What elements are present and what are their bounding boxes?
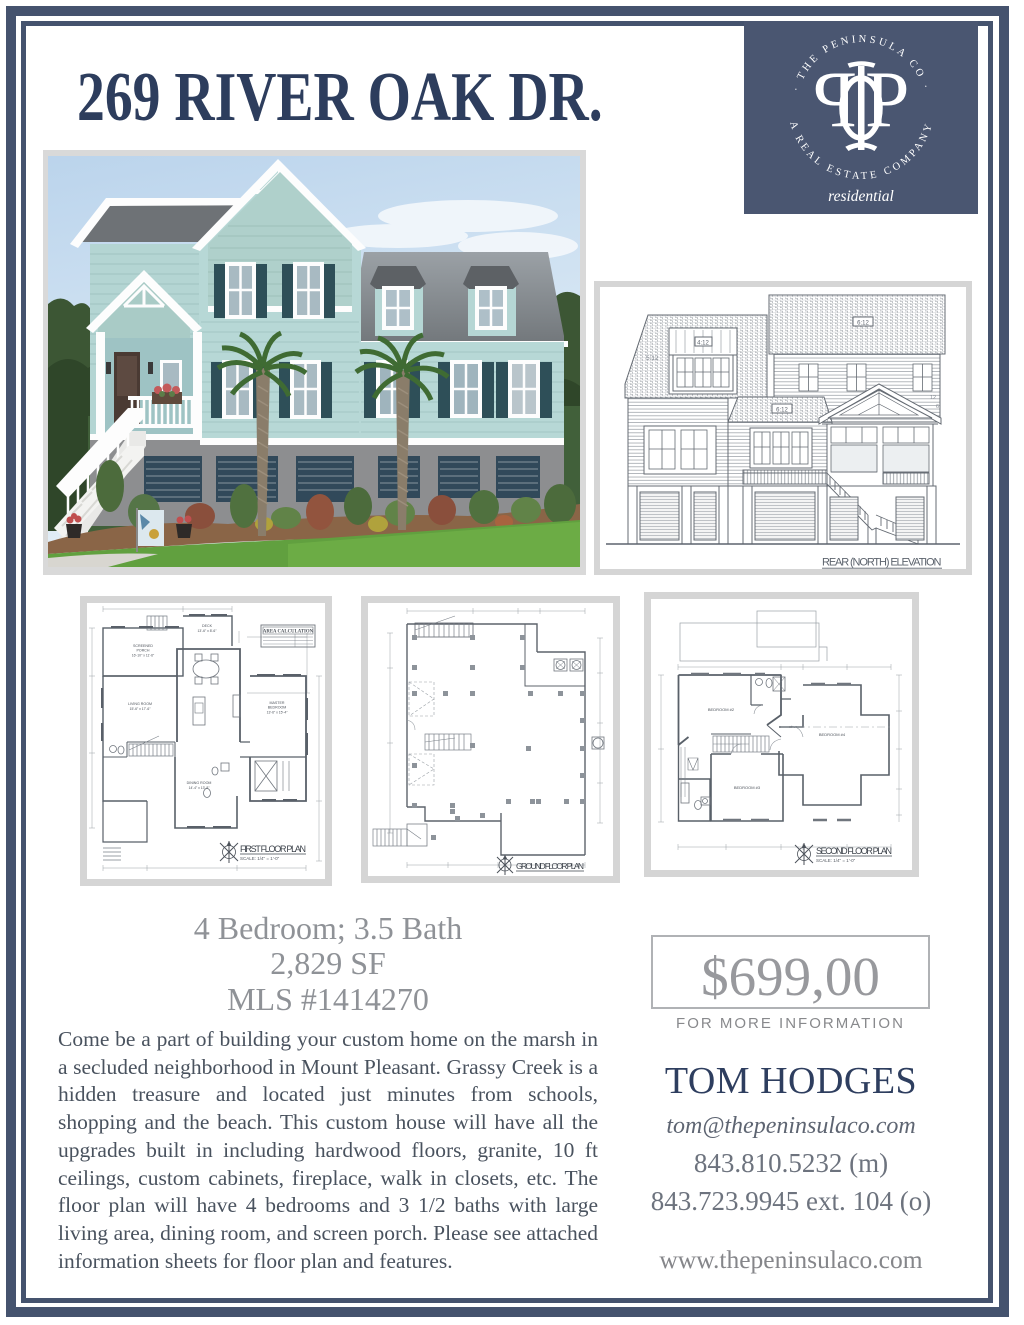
svg-text:MASTER: MASTER [270,701,285,705]
svg-text:13'-6" x 15'-4": 13'-6" x 15'-4" [267,711,289,715]
svg-text:LIVING ROOM: LIVING ROOM [128,702,152,706]
svg-text:BEDROOM #2: BEDROOM #2 [708,707,735,712]
svg-text:BEDROOM: BEDROOM [268,706,287,710]
svg-text:BEDROOM #4: BEDROOM #4 [819,732,846,737]
svg-text:SCALE: 1/4" = 1'-0": SCALE: 1/4" = 1'-0" [816,858,856,863]
svg-text:6:12: 6:12 [776,408,788,414]
svg-text:13'-6" x 8'-6": 13'-6" x 8'-6" [198,629,218,633]
svg-text:FIRST FLOOR PLAN: FIRST FLOOR PLAN [240,844,306,854]
svg-text:GROUND FLOOR PLAN: GROUND FLOOR PLAN [516,861,584,871]
svg-text:12: 12 [930,395,936,401]
svg-text:REAR (NORTH) ELEVATION: REAR (NORTH) ELEVATION [822,557,942,569]
svg-text:SCREENED: SCREENED [133,644,153,648]
svg-text:DINING ROOM: DINING ROOM [187,781,212,785]
svg-text:6:12: 6:12 [857,321,869,327]
svg-text:6: 6 [936,404,939,410]
svg-text:14'-4" x 13'-8": 14'-4" x 13'-8" [189,786,211,790]
svg-text:DECK: DECK [202,624,213,628]
svg-text:16'-10" x 11'-6": 16'-10" x 11'-6" [132,654,155,658]
svg-text:15'-6" x 17'-6": 15'-6" x 17'-6" [130,707,152,711]
svg-text:4:12: 4:12 [697,341,709,347]
svg-text:AREA CALCULATION: AREA CALCULATION [263,630,314,635]
svg-text:PORCH: PORCH [137,649,150,653]
svg-text:SCALE: 1/4" = 1'-0": SCALE: 1/4" = 1'-0" [240,856,280,861]
svg-text:5:12: 5:12 [646,355,659,362]
svg-text:residential: residential [828,188,894,205]
svg-text:SECOND FLOOR PLAN: SECOND FLOOR PLAN [816,846,892,856]
svg-text:BEDROOM #3: BEDROOM #3 [734,785,761,790]
